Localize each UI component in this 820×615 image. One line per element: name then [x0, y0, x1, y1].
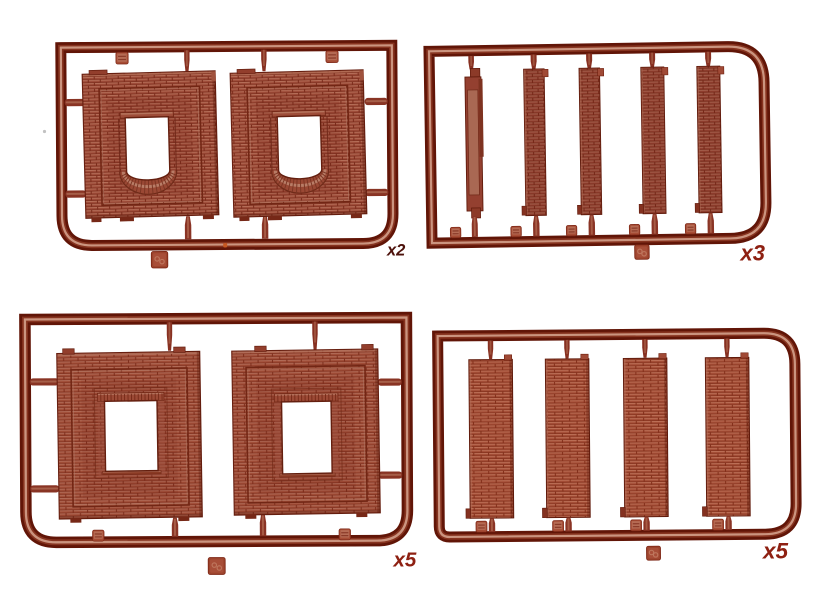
svg-text:x2: x2: [386, 242, 405, 260]
svg-text:x3: x3: [740, 241, 765, 266]
svg-text:x5: x5: [762, 539, 789, 564]
svg-text:x5: x5: [393, 549, 417, 572]
